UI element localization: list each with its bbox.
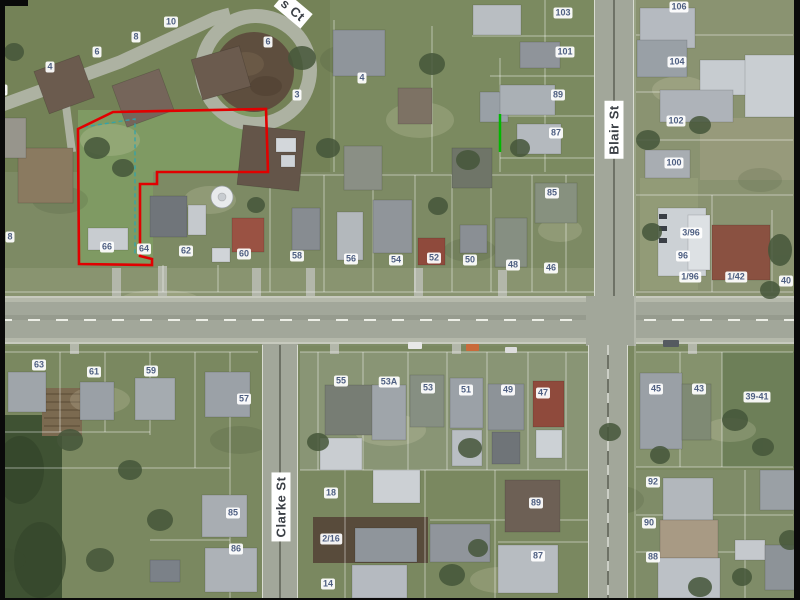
house-number-label: 62 bbox=[179, 246, 193, 257]
house-number-label: 45 bbox=[649, 384, 663, 395]
house-number-label: 50 bbox=[463, 255, 477, 266]
house-number-label: 55 bbox=[334, 376, 348, 387]
house-number-label: 56 bbox=[344, 254, 358, 265]
house-number-label: 59 bbox=[144, 366, 158, 377]
house-number-label: 4 bbox=[357, 73, 366, 84]
house-number-label: 106 bbox=[669, 2, 688, 13]
house-number-label: 86 bbox=[229, 544, 243, 555]
house-number-label: 6 bbox=[263, 37, 272, 48]
house-number-label: 88 bbox=[646, 552, 660, 563]
house-number-label: 60 bbox=[237, 249, 251, 260]
house-number-label: 101 bbox=[555, 47, 574, 58]
house-number-label: 8 bbox=[131, 32, 140, 43]
house-number-label: 87 bbox=[549, 128, 563, 139]
house-number-label: 3/96 bbox=[680, 228, 702, 239]
house-number-label: 51 bbox=[459, 385, 473, 396]
house-number-label: 57 bbox=[237, 394, 251, 405]
border-bar-right bbox=[794, 0, 800, 600]
house-number-label: 46 bbox=[544, 263, 558, 274]
house-number-label: 39-41 bbox=[743, 392, 770, 403]
house-number-label: 96 bbox=[676, 251, 690, 262]
house-number-label: 85 bbox=[226, 508, 240, 519]
house-number-label: 40 bbox=[779, 276, 793, 287]
house-number-label: 100 bbox=[664, 158, 683, 169]
house-number-label: 48 bbox=[506, 260, 520, 271]
house-number-label: 103 bbox=[553, 8, 572, 19]
house-number-label: 90 bbox=[642, 518, 656, 529]
house-number-label: 3 bbox=[292, 90, 301, 101]
aerial-map-canvas: Blair St Clarke St s Ct 2468106431031018… bbox=[0, 0, 800, 600]
house-number-label: 4 bbox=[45, 62, 54, 73]
house-number-label: 63 bbox=[32, 360, 46, 371]
house-number-label: 14 bbox=[321, 579, 335, 590]
house-number-label: 1/96 bbox=[679, 272, 701, 283]
house-number-label: 47 bbox=[536, 388, 550, 399]
house-number-label: 92 bbox=[646, 477, 660, 488]
border-bar-corner bbox=[0, 0, 28, 6]
aerial-photo bbox=[0, 0, 800, 600]
house-number-label: 89 bbox=[529, 498, 543, 509]
house-number-label: 52 bbox=[427, 253, 441, 264]
house-number-label: 43 bbox=[692, 384, 706, 395]
house-number-label: 54 bbox=[389, 255, 403, 266]
border-bar-left bbox=[0, 0, 5, 600]
house-number-label: 64 bbox=[137, 244, 151, 255]
house-number-label: 53A bbox=[379, 377, 400, 388]
house-number-label: 2/16 bbox=[320, 534, 342, 545]
house-number-label: 6 bbox=[92, 47, 101, 58]
house-number-label: 104 bbox=[667, 57, 686, 68]
house-number-label: 102 bbox=[666, 116, 685, 127]
house-number-label: 87 bbox=[531, 551, 545, 562]
house-number-label: 66 bbox=[100, 242, 114, 253]
house-number-label: 49 bbox=[501, 385, 515, 396]
house-number-label: 10 bbox=[164, 17, 178, 28]
house-number-label: 61 bbox=[87, 367, 101, 378]
street-label-blair-st: Blair St bbox=[605, 101, 624, 159]
street-label-clarke-st: Clarke St bbox=[272, 473, 291, 542]
house-number-label: 8 bbox=[5, 232, 14, 243]
house-number-label: 53 bbox=[421, 383, 435, 394]
house-number-label: 85 bbox=[545, 188, 559, 199]
house-number-label: 58 bbox=[290, 251, 304, 262]
house-number-label: 18 bbox=[324, 488, 338, 499]
house-number-label: 89 bbox=[551, 90, 565, 101]
house-number-label: 1/42 bbox=[725, 272, 747, 283]
